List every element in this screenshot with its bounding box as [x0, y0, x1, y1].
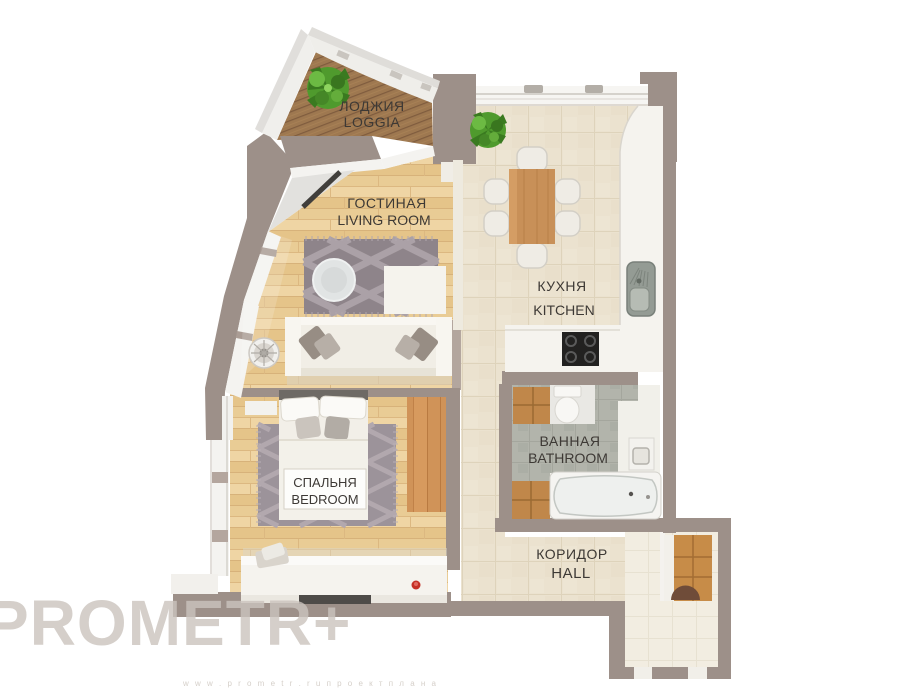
svg-text:HALL: HALL: [551, 565, 591, 582]
svg-text:КУХНЯ: КУХНЯ: [537, 278, 586, 294]
svg-text:PROMETR+: PROMETR+: [0, 587, 351, 659]
svg-text:BEDROOM: BEDROOM: [291, 492, 358, 507]
svg-text:ВАННАЯ: ВАННАЯ: [540, 433, 601, 449]
svg-text:w w w . p r o m e t r . r u: w w w . p r o m e t r . r u п р о е к т …: [182, 679, 438, 688]
svg-text:KITCHEN: KITCHEN: [533, 302, 594, 318]
svg-text:LIVING ROOM: LIVING ROOM: [337, 212, 430, 228]
svg-text:ЛОДЖИЯ: ЛОДЖИЯ: [339, 98, 404, 114]
svg-text:СПАЛЬНЯ: СПАЛЬНЯ: [293, 475, 357, 490]
svg-text:BATHROOM: BATHROOM: [528, 450, 608, 466]
svg-text:LOGGIA: LOGGIA: [344, 114, 401, 130]
svg-text:ГОСТИНАЯ: ГОСТИНАЯ: [347, 195, 427, 211]
svg-text:КОРИДОР: КОРИДОР: [536, 546, 608, 562]
